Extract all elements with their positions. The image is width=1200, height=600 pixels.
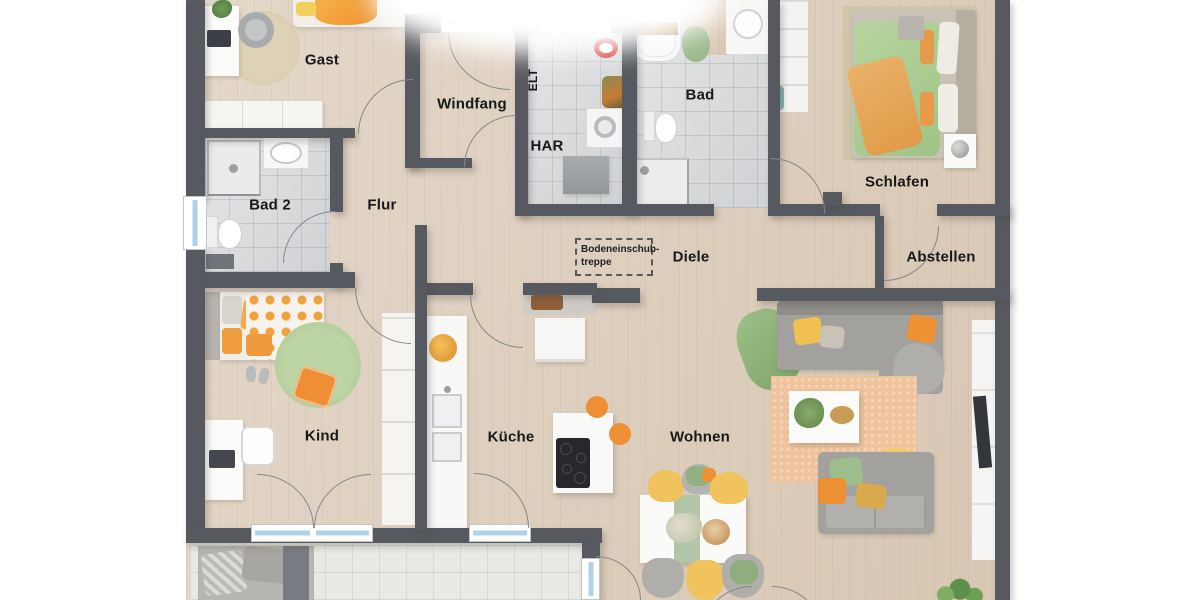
wall (592, 288, 640, 303)
pillow (818, 478, 846, 504)
room-label-kind: Kind (305, 429, 339, 444)
kids-bed-headboard (205, 292, 220, 360)
room-label-bad2: Bad 2 (249, 198, 291, 213)
shower-drain (229, 164, 238, 173)
pillow (920, 92, 934, 126)
decor-tray (830, 406, 854, 424)
shower-head (640, 166, 649, 175)
pillow (222, 328, 242, 354)
window-glass (193, 200, 198, 246)
laptop (209, 450, 235, 468)
sink-basin (432, 432, 462, 462)
toilet-bowl (655, 113, 677, 143)
dining-chair-yellow (686, 560, 724, 600)
bar-stool (586, 396, 608, 418)
sink-basin (432, 394, 462, 428)
plant (928, 578, 986, 600)
pillow (222, 296, 242, 324)
wall (415, 283, 427, 530)
fruit-bowl (429, 334, 457, 362)
napkin-green (730, 560, 758, 584)
washing-machine-door (594, 116, 616, 138)
pillow (938, 84, 958, 132)
wall (937, 204, 1010, 216)
blanket (315, 0, 377, 25)
folded-blanket (246, 334, 272, 356)
wall (405, 158, 472, 168)
slippers (246, 366, 256, 382)
room-label-flur: Flur (367, 198, 396, 213)
attic-stairs-box: Bodeneinschub- treppe (575, 238, 653, 276)
fridge (535, 318, 585, 362)
bath-mat (206, 254, 234, 269)
wall (186, 248, 205, 532)
wall (203, 272, 355, 288)
pillow (819, 325, 845, 349)
laptop (207, 30, 231, 47)
pillow (906, 314, 938, 344)
window-glass (588, 562, 593, 596)
desk-chair (241, 426, 275, 466)
room-label-diele: Diele (673, 250, 710, 265)
fruit-bowl (702, 519, 730, 545)
attic-stairs-line2: treppe (581, 256, 649, 269)
pillow (854, 482, 887, 510)
pillow (296, 2, 316, 16)
vanity-basin (733, 9, 763, 39)
shower (631, 158, 689, 206)
wall (415, 225, 427, 283)
faucet (444, 386, 451, 393)
attic-stairs-line1: Bodeneinschub- (581, 243, 649, 256)
washbasin-bowl (270, 142, 302, 164)
room-label-abstellen: Abstellen (906, 250, 975, 265)
appliance-box (563, 156, 609, 194)
desk-chair-seat (245, 19, 267, 41)
wall (523, 283, 597, 295)
folded-blanket (898, 16, 924, 40)
outdoor-runner (283, 546, 309, 600)
table-lamp (951, 140, 969, 158)
sofa-backrest (777, 300, 943, 315)
toilet-bowl (218, 219, 242, 249)
window (183, 196, 207, 250)
room-label-bad: Bad (686, 88, 715, 103)
wall (515, 204, 714, 216)
room-label-schlafen: Schlafen (865, 175, 929, 190)
cooktop (556, 438, 590, 488)
wardrobe (382, 313, 415, 525)
bar-stool (609, 423, 631, 445)
room-label-elt: ELT (527, 69, 539, 91)
window-divider (310, 527, 316, 539)
window-glass (473, 531, 527, 536)
wall (330, 128, 343, 212)
room-label-windfang: Windfang (437, 97, 507, 112)
pillow (936, 21, 960, 74)
toilet-tank (643, 111, 655, 141)
cutting-board (531, 295, 563, 310)
room-label-wohnen: Wohnen (670, 430, 730, 445)
dining-chair-yellow (710, 472, 748, 504)
plant (794, 398, 824, 428)
wall (823, 192, 842, 206)
wall (186, 528, 602, 543)
dining-chair-gray (642, 558, 684, 598)
wall (757, 288, 1010, 301)
dining-chair-yellow (648, 470, 684, 502)
dresser (203, 101, 323, 128)
wall (186, 0, 205, 200)
wall (875, 216, 884, 290)
room-label-har: HAR (530, 139, 563, 154)
floor-plan: Gast Windfang ELT HAR Bad Schlafen Bad 2… (0, 0, 1200, 600)
room-label-gast: Gast (305, 53, 339, 68)
room-label-kueche: Küche (488, 430, 535, 445)
striped-pillow (200, 549, 247, 596)
